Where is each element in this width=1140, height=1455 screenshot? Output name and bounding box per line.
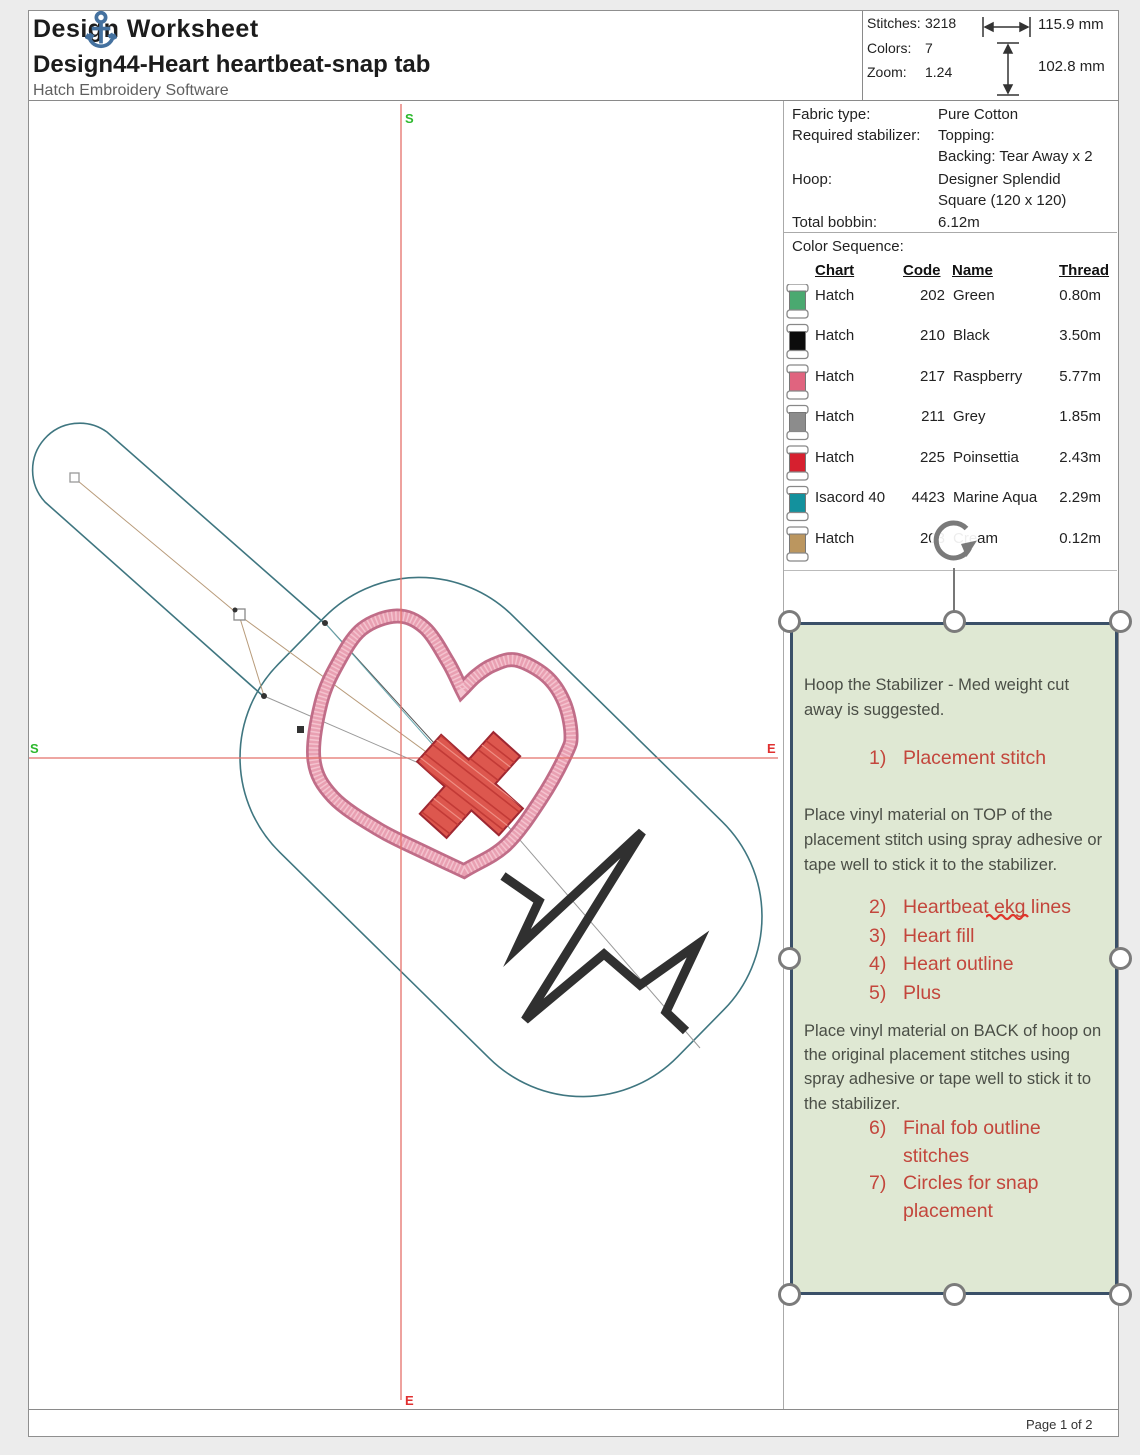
svg-text:S: S — [30, 741, 39, 756]
svg-text:E: E — [405, 1393, 414, 1408]
svg-text:S: S — [405, 111, 414, 126]
svg-text:E: E — [767, 741, 776, 756]
